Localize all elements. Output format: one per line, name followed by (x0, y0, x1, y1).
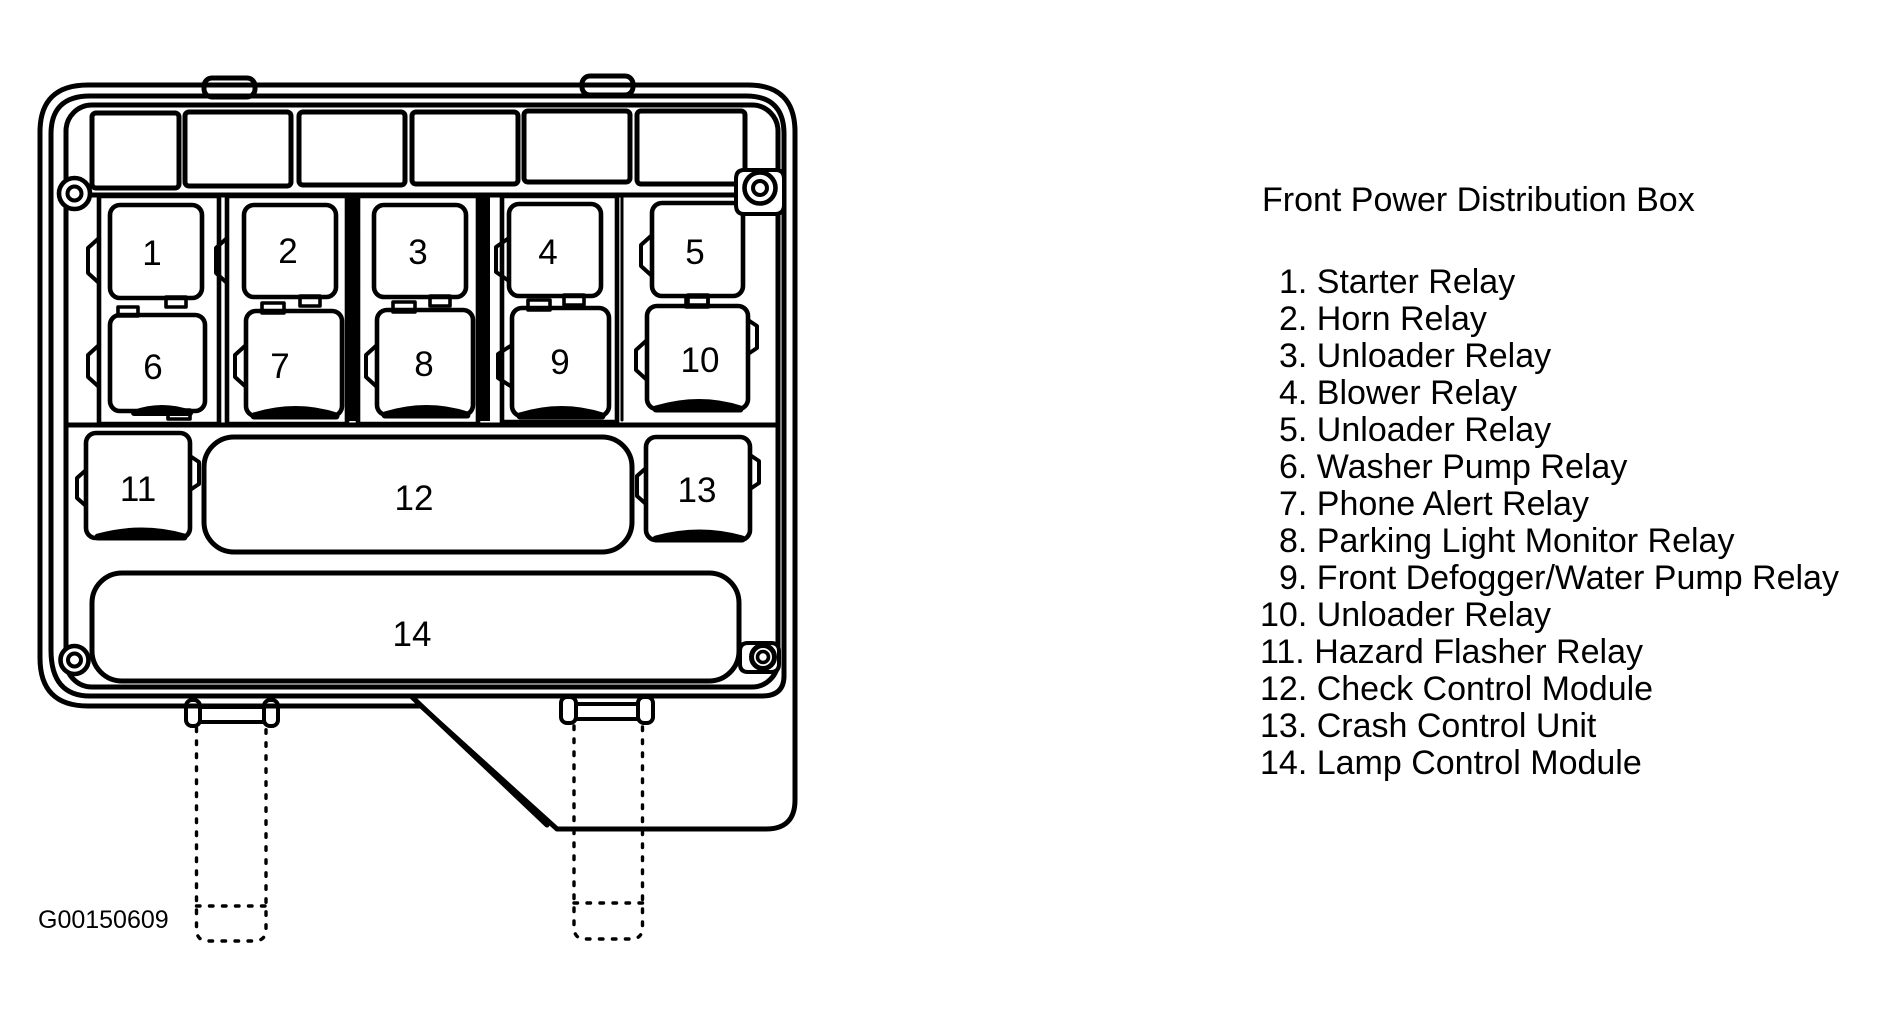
svg-text:7: 7 (270, 347, 289, 386)
svg-text:10. Unloader Relay: 10. Unloader Relay (1260, 596, 1551, 634)
svg-text:1: 1 (142, 234, 161, 273)
svg-text:3. Unloader Relay: 3. Unloader Relay (1279, 337, 1551, 375)
svg-text:7. Phone Alert Relay: 7. Phone Alert Relay (1279, 485, 1589, 523)
svg-text:11: 11 (120, 470, 156, 509)
svg-text:11. Hazard Flasher Relay: 11. Hazard Flasher Relay (1260, 633, 1643, 671)
svg-text:Front Power Distribution Box: Front Power Distribution Box (1262, 181, 1695, 219)
svg-text:12. Check Control Module: 12. Check Control Module (1260, 670, 1653, 708)
svg-text:6. Washer Pump Relay: 6. Washer Pump Relay (1279, 448, 1627, 486)
svg-text:4: 4 (538, 233, 557, 272)
svg-text:14: 14 (393, 615, 432, 654)
svg-text:9. Front Defogger/Water Pump R: 9. Front Defogger/Water Pump Relay (1279, 559, 1839, 597)
svg-text:8. Parking Light Monitor Relay: 8. Parking Light Monitor Relay (1279, 522, 1734, 560)
svg-text:1. Starter Relay: 1. Starter Relay (1279, 263, 1515, 301)
svg-text:2. Horn Relay: 2. Horn Relay (1279, 300, 1487, 338)
svg-text:2: 2 (278, 232, 297, 271)
svg-text:5: 5 (685, 233, 704, 272)
svg-text:13: 13 (678, 471, 717, 510)
svg-text:6: 6 (143, 348, 162, 387)
svg-text:5. Unloader Relay: 5. Unloader Relay (1279, 411, 1551, 449)
svg-text:14. Lamp Control Module: 14. Lamp Control Module (1260, 744, 1642, 782)
svg-text:13. Crash Control Unit: 13. Crash Control Unit (1260, 707, 1597, 745)
svg-text:12: 12 (395, 479, 434, 518)
svg-text:4. Blower Relay: 4. Blower Relay (1279, 374, 1517, 412)
svg-text:9: 9 (550, 343, 569, 382)
svg-text:8: 8 (414, 345, 433, 384)
svg-text:3: 3 (408, 233, 427, 272)
svg-text:10: 10 (681, 341, 720, 380)
svg-text:G00150609: G00150609 (38, 906, 169, 934)
